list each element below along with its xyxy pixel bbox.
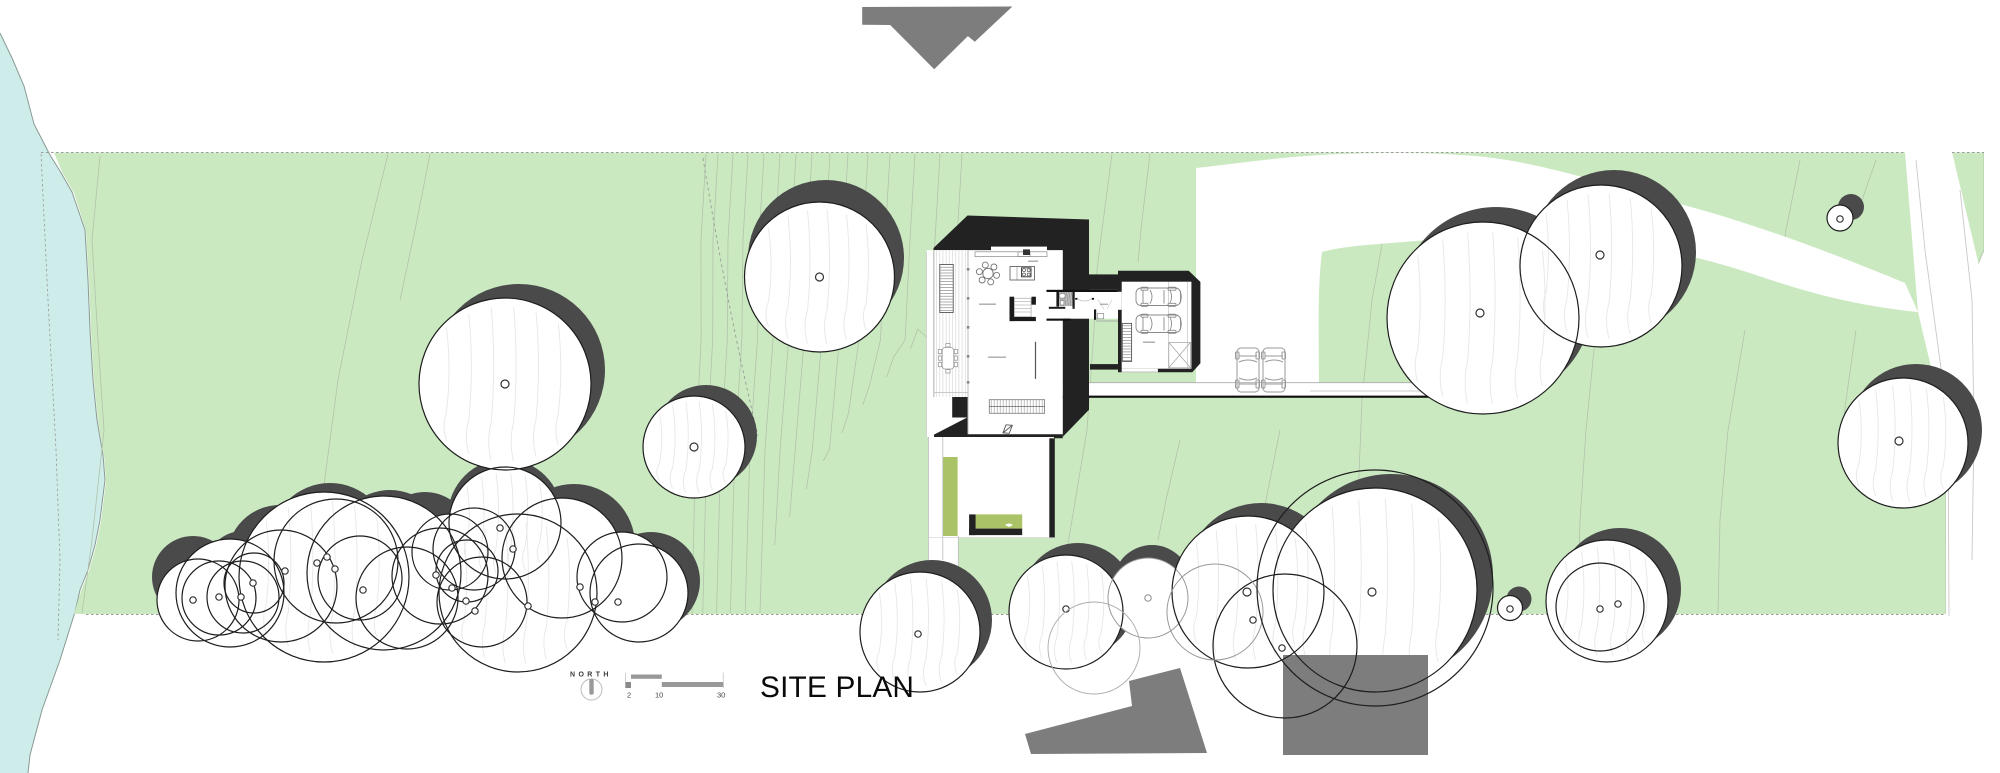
svg-text:10: 10 <box>655 691 663 700</box>
svg-text:2: 2 <box>627 691 631 700</box>
svg-text:30: 30 <box>717 691 725 700</box>
svg-text:NORTH: NORTH <box>570 672 612 679</box>
svg-text:SITE PLAN: SITE PLAN <box>760 671 914 704</box>
